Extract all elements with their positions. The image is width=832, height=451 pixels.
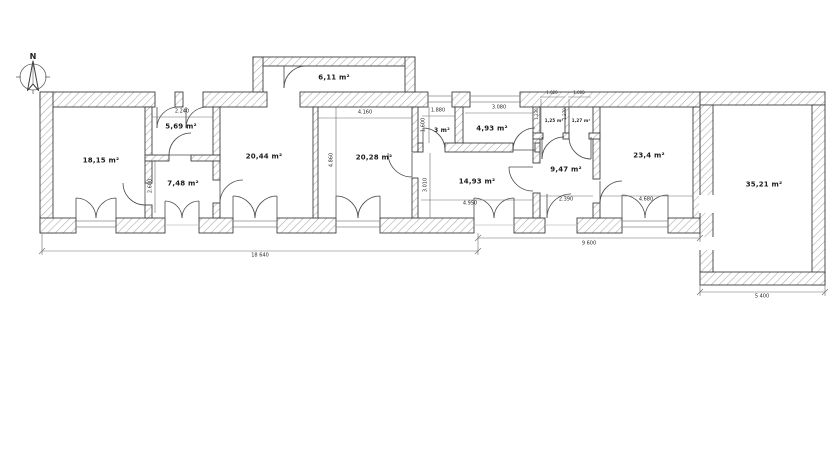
room-label-18-15: 18,15 m² [83, 158, 120, 165]
dim-label-1230: 1.230 [535, 108, 539, 119]
room-label-35-21: 35,21 m² [746, 182, 783, 189]
interior-walls [145, 107, 600, 218]
room-label-1-27: 1,27 m² [572, 119, 591, 123]
floor-plan: N 18,15 m² 5,69 m² 7,48 m² 20,44 m² 20,2… [0, 0, 832, 451]
floor-plan-drawing [0, 0, 832, 451]
room-label-7-48: 7,48 m² [167, 181, 198, 188]
room-label-4-93: 4,93 m² [476, 126, 507, 133]
dim-label-4860: 4.860 [330, 153, 335, 167]
garage-walls [693, 92, 825, 285]
dim-label-4160: 4.160 [358, 111, 372, 116]
room-label-9-47: 9,47 m² [550, 167, 581, 174]
dim-label-1270: 1.270 [563, 108, 567, 119]
north-arrow-icon [16, 61, 50, 94]
dim-label-5400: 5 400 [755, 295, 769, 300]
room-label-6-11: 6,11 m² [318, 75, 349, 82]
dim-label-2390: 2.390 [559, 198, 573, 203]
room-label-1-25: 1,25 m² [545, 119, 564, 123]
dim-label-2600: 2.600 [149, 179, 154, 193]
room-label-20-44: 20,44 m² [246, 154, 283, 161]
dim-label-3010: 3.010 [424, 178, 429, 192]
room-label-5-69: 5,69 m² [165, 124, 196, 131]
dim-label-4950: 4.950 [463, 202, 477, 207]
room-label-14-93: 14,93 m² [459, 179, 496, 186]
dim-label-1000: 1.000 [573, 91, 584, 95]
dim-label-3080: 3.080 [492, 106, 506, 111]
room-label-3: 3 m² [434, 128, 450, 134]
door-swings [123, 66, 622, 218]
dim-label-9600: 9 600 [582, 242, 596, 247]
room-label-23-4: 23,4 m² [633, 153, 664, 160]
dim-label-4680: 4.680 [639, 198, 653, 203]
room-label-20-28: 20,28 m² [356, 155, 393, 162]
dim-label-1020: 1.020 [546, 91, 557, 95]
window-swings [76, 195, 668, 218]
dim-label-18640: 18 640 [251, 254, 269, 259]
north-label: N [30, 53, 37, 61]
dim-label-1880: 1.880 [431, 109, 445, 114]
dim-label-2240: 2.240 [175, 110, 189, 115]
dim-label-1600: 1.600 [422, 118, 427, 132]
